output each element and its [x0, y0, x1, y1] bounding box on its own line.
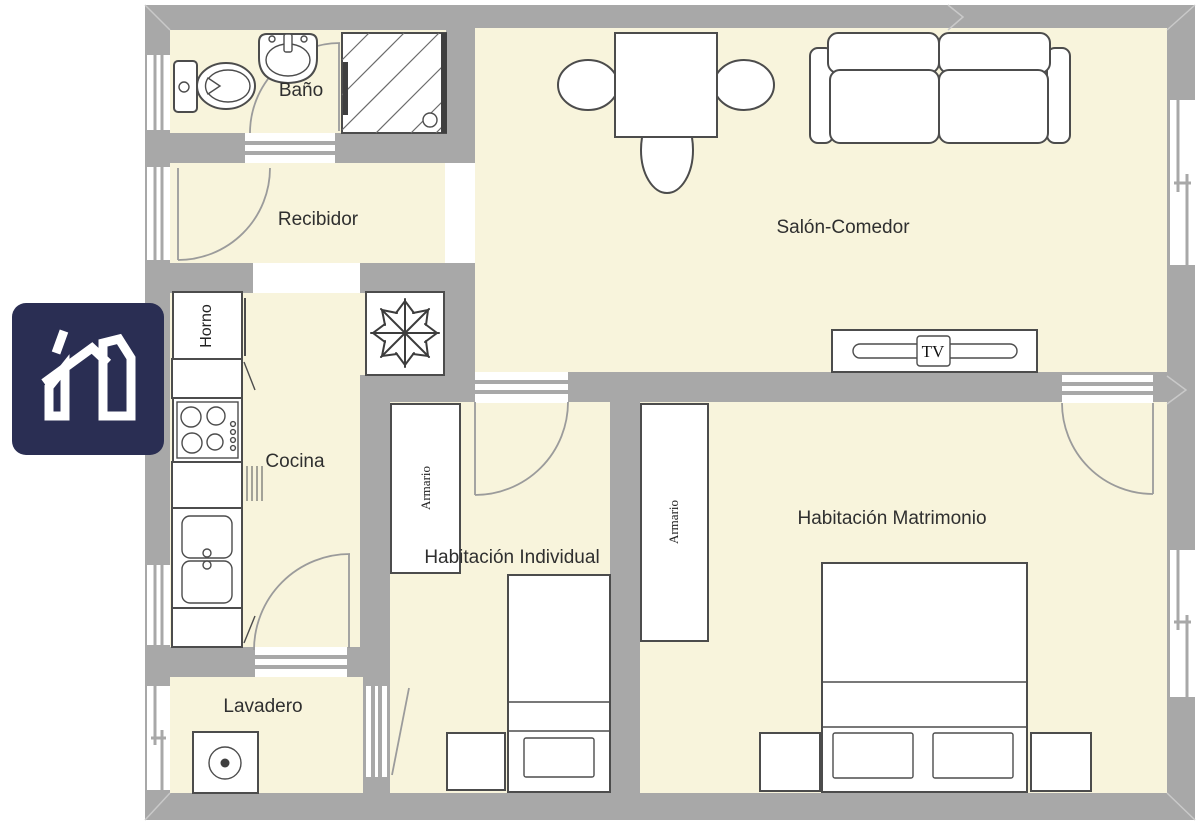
label-habitacion-individual: Habitación Individual — [424, 547, 599, 568]
toilet-icon — [174, 61, 255, 112]
opening-recibidor-cocina — [253, 263, 360, 293]
double-bed-icon — [822, 563, 1027, 792]
kitchen-sink-icon — [172, 508, 242, 608]
armario-matrimonio-label: Armario — [666, 500, 681, 544]
sofa-icon — [810, 33, 1070, 143]
window-salon — [1170, 100, 1195, 265]
label-cocina: Cocina — [265, 451, 325, 472]
sink-icon — [259, 34, 317, 83]
window-recibidor — [147, 167, 170, 260]
nightstand-icon — [447, 733, 505, 790]
logo-background — [12, 303, 164, 455]
snowflake-icon — [371, 299, 439, 367]
tv-unit: TV — [832, 330, 1037, 372]
nightstand-right-icon — [1031, 733, 1091, 791]
fridge-icon — [366, 292, 444, 375]
wardrobe-matrimonio: Armario — [641, 404, 708, 641]
window-cocina — [147, 565, 170, 645]
threshold-bano — [245, 133, 335, 163]
armario-individual-label: Armario — [418, 466, 433, 510]
threshold-habitacion-individual — [475, 372, 568, 403]
floorplan-image: TV Horno — [0, 0, 1200, 830]
horno-label: Horno — [198, 304, 215, 348]
stove-icon — [173, 398, 242, 462]
shower-icon — [342, 33, 447, 133]
dining-table-icon — [615, 33, 717, 137]
washing-machine-icon — [193, 732, 258, 793]
window-bano — [147, 55, 170, 130]
label-lavadero: Lavadero — [223, 696, 302, 717]
window-habitacion-matrimonio — [1170, 550, 1195, 697]
nightstand-left-icon — [760, 733, 820, 791]
label-habitacion-matrimonio: Habitación Matrimonio — [797, 508, 986, 529]
label-salon-comedor: Salón-Comedor — [776, 217, 910, 238]
window-lavadero — [147, 686, 170, 790]
label-bano: Baño — [279, 80, 323, 101]
chair-right-icon — [714, 60, 774, 110]
tv-label: TV — [922, 342, 945, 361]
counter-bottom — [172, 608, 255, 647]
threshold-habitacion-matrimonio — [1062, 375, 1153, 403]
counter-icon — [172, 359, 242, 398]
logo — [12, 303, 164, 455]
threshold-lavadero — [366, 686, 387, 777]
chair-left-icon — [558, 60, 618, 110]
floorplan-svg: TV Horno — [0, 0, 1200, 830]
threshold-cocina-lavadero — [255, 647, 347, 677]
opening-recibidor-salon — [445, 163, 475, 263]
single-bed-icon — [508, 575, 610, 792]
label-recibidor: Recibidor — [278, 209, 359, 230]
